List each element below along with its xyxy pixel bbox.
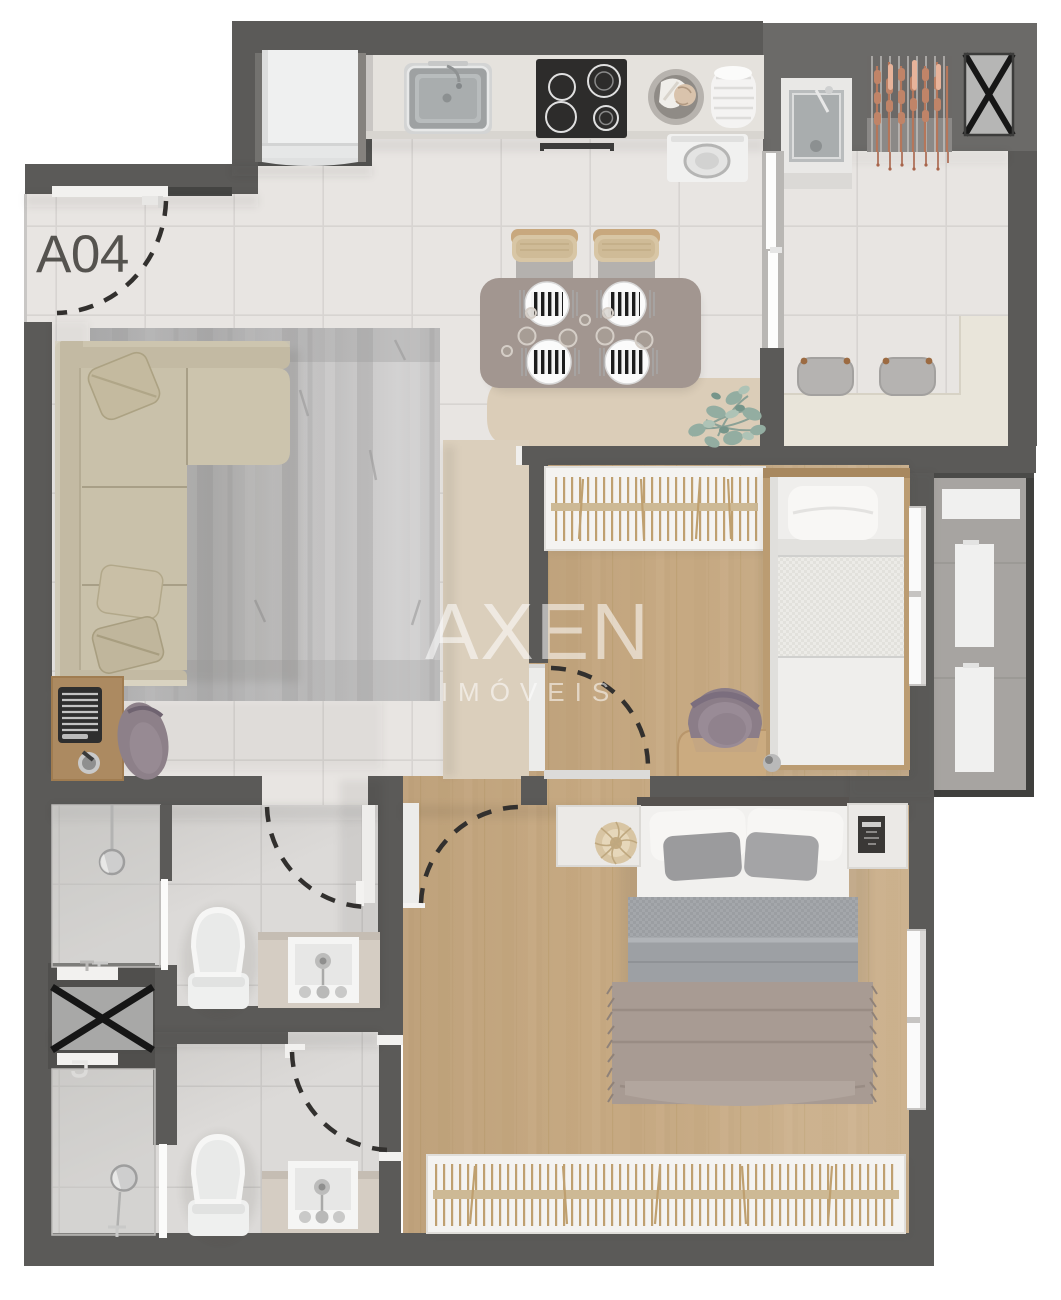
svg-text:A04: A04 (36, 225, 129, 284)
svg-text:IMÓVEIS: IMÓVEIS (441, 677, 619, 707)
svg-text:AXEN: AXEN (425, 587, 651, 676)
